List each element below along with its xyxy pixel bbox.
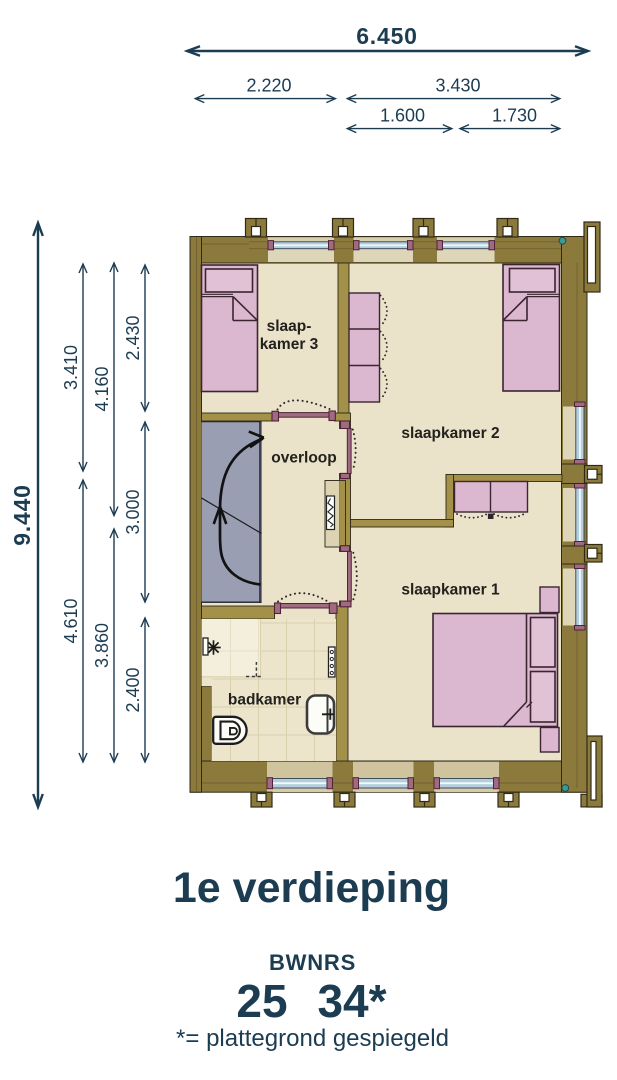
svg-text:3.410: 3.410 xyxy=(61,345,81,390)
svg-text:2.400: 2.400 xyxy=(123,667,143,712)
svg-text:slaapkamer 1: slaapkamer 1 xyxy=(401,582,500,599)
svg-text:25: 25 xyxy=(236,975,287,1027)
svg-text:1e verdieping: 1e verdieping xyxy=(173,864,450,912)
svg-text:3.860: 3.860 xyxy=(92,623,112,668)
svg-text:4.160: 4.160 xyxy=(92,366,112,411)
svg-text:slaapkamer 2: slaapkamer 2 xyxy=(401,425,499,442)
svg-text:3.000: 3.000 xyxy=(123,489,143,534)
svg-text:kamer 3: kamer 3 xyxy=(260,336,319,353)
svg-text:6.450: 6.450 xyxy=(356,23,418,49)
svg-text:34*: 34* xyxy=(317,975,386,1027)
svg-text:1.600: 1.600 xyxy=(380,106,425,126)
svg-text:1.730: 1.730 xyxy=(492,106,537,126)
svg-text:2.220: 2.220 xyxy=(246,76,291,96)
svg-text:badkamer: badkamer xyxy=(228,692,301,709)
svg-text:9.440: 9.440 xyxy=(9,484,35,546)
svg-text:4.610: 4.610 xyxy=(61,598,81,643)
svg-text:BWNRS: BWNRS xyxy=(269,950,356,975)
svg-text:2.430: 2.430 xyxy=(123,315,143,360)
svg-text:*= plattegrond gespiegeld: *= plattegrond gespiegeld xyxy=(176,1025,449,1052)
svg-text:slaap-: slaap- xyxy=(267,318,312,335)
svg-text:overloop: overloop xyxy=(271,450,336,467)
svg-text:3.430: 3.430 xyxy=(435,76,480,96)
